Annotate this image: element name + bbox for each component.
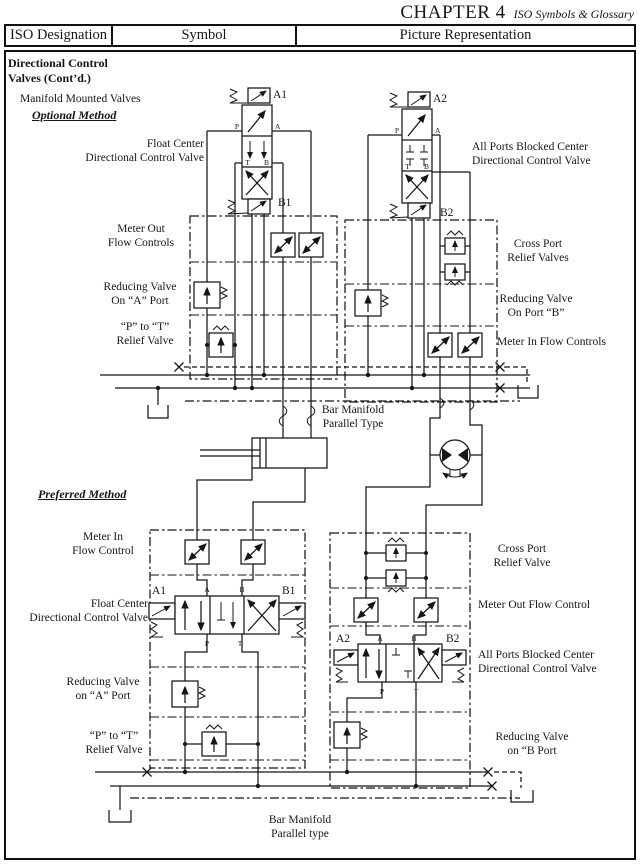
- reducing-valve-b-symbol: [355, 290, 388, 316]
- cylinder-drop-left: [197, 468, 252, 540]
- valve-a2-b2-blocked-center: A2 B2 P A T B: [390, 92, 454, 219]
- p-to-t-relief-symbol-preferred: [202, 725, 226, 756]
- port-a: A: [275, 122, 281, 131]
- group-intro: Manifold Mounted Valves: [20, 93, 141, 107]
- preferred-right-circuit: A2 B2 A B P T: [330, 533, 470, 788]
- manual-page: CHAPTER 4 ISO Symbols & Glossary ISO Des…: [0, 0, 640, 867]
- valve-tag-b2: B2: [446, 633, 460, 645]
- meter-in-flow-controls-symbol: [428, 333, 482, 357]
- valve-tag-b1: B1: [282, 585, 296, 597]
- port-t: T: [405, 162, 410, 171]
- cylinder-drop-right: [253, 468, 305, 540]
- valve-tag-a2: A2: [336, 633, 350, 645]
- valve-tag-b2: B2: [440, 207, 454, 219]
- optional-method-heading: Optional Method: [32, 108, 116, 122]
- port-p: P: [395, 126, 399, 135]
- label-p-to-t-relief-preferred: “P” to “T” Relief Valve: [78, 730, 150, 758]
- valve-a1-b1-float-center: A1 B1 P A T B: [228, 88, 292, 214]
- label-float-center-dcv: Float Center Directional Control Valve: [58, 138, 204, 166]
- motor-symbol: [440, 440, 470, 477]
- label-reducing-valve-b: Reducing Valve On Port “B”: [492, 293, 580, 321]
- label-meter-in-flow-control: Meter In Flow Control: [60, 531, 146, 559]
- label-bar-manifold-bottom: Bar Manifold Parallel type: [255, 814, 345, 842]
- valve-tag-b1: B1: [278, 197, 292, 209]
- reducing-valve-a-symbol-preferred: [172, 681, 205, 707]
- label-meter-out-flow-control-preferred: Meter Out Flow Control: [478, 599, 628, 613]
- valve-a1-b1-preferred: A1 B1 A B P T: [149, 585, 305, 648]
- label-cross-port-relief-valve-preferred: Cross Port Relief Valve: [484, 543, 560, 571]
- port-t: T: [245, 158, 250, 167]
- category-title: Directional Control Valves (Cont’d.): [8, 56, 138, 86]
- valve-a2-b2-preferred: A2 B2 A B P T: [334, 633, 466, 696]
- port-a: A: [204, 585, 210, 594]
- label-meter-out-flow-controls: Meter Out Flow Controls: [96, 223, 186, 251]
- label-p-to-t-relief: “P” to “T” Relief Valve: [104, 321, 186, 349]
- cross-port-relief-valve-symbol-preferred: [386, 538, 406, 592]
- reducing-valve-a-symbol: [194, 282, 227, 308]
- label-meter-in-flow-controls: Meter In Flow Controls: [497, 336, 637, 350]
- p-to-t-relief-symbol: [209, 326, 233, 357]
- label-reducing-valve-b-preferred: Reducing Valve on “B Port: [486, 731, 578, 759]
- label-reducing-valve-a: Reducing Valve On “A” Port: [94, 281, 186, 309]
- reducing-valve-b-symbol-preferred: [334, 722, 367, 748]
- preferred-left-circuit: A1 B1 A B P T: [149, 530, 305, 786]
- port-b: B: [264, 158, 269, 167]
- valve-tag-a1: A1: [273, 89, 287, 101]
- port-p: P: [235, 122, 239, 131]
- cross-port-relief-valves-symbol: [445, 231, 465, 285]
- label-reducing-valve-a-preferred: Reducing Valve on “A” Port: [58, 676, 148, 704]
- label-cross-port-relief-valves: Cross Port Relief Valves: [500, 238, 576, 266]
- label-bar-manifold-top: Bar Manifold Parallel Type: [308, 404, 398, 432]
- label-all-ports-blocked-dcv: All Ports Blocked Center Directional Con…: [472, 141, 612, 169]
- port-b: B: [424, 162, 429, 171]
- meter-in-flow-control-symbol: [185, 540, 265, 564]
- label-float-center-dcv-preferred: Float Center Directional Control Valve: [10, 598, 148, 626]
- cylinder-symbol: [200, 438, 327, 468]
- valve-tag-a1: A1: [152, 585, 166, 597]
- meter-out-flow-control-symbol-preferred: [354, 598, 438, 622]
- meter-out-flow-controls-symbol: [271, 233, 323, 257]
- valve-tag-a2: A2: [433, 93, 447, 105]
- port-b: B: [239, 585, 244, 594]
- port-b: B: [411, 634, 416, 643]
- label-all-ports-blocked-dcv-preferred: All Ports Blocked Center Directional Con…: [478, 649, 623, 677]
- optional-left-circuit: A1 B1 P A T B: [194, 88, 323, 438]
- preferred-method-heading: Preferred Method: [38, 487, 126, 501]
- port-a: A: [377, 634, 383, 643]
- port-a: A: [435, 126, 441, 135]
